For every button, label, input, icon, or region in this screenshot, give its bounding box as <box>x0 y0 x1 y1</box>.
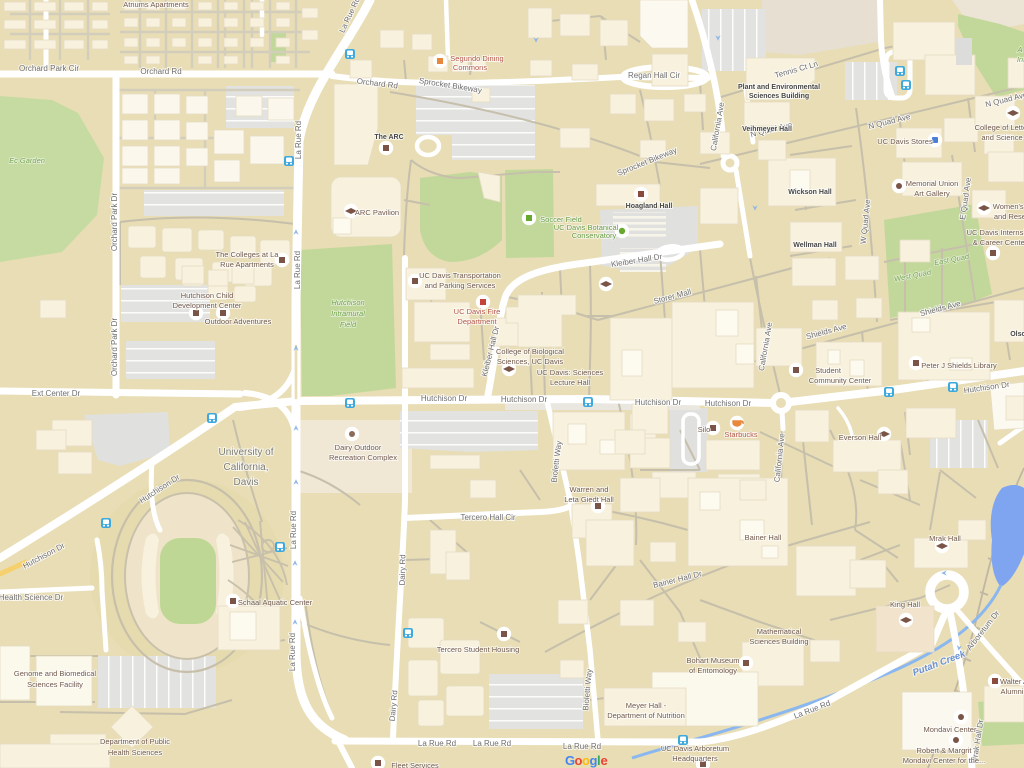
svg-text:Hutchison: Hutchison <box>331 298 364 307</box>
svg-text:Mrak Hall: Mrak Hall <box>929 534 961 543</box>
svg-text:Orchard Park Dr: Orchard Park Dr <box>110 318 119 377</box>
svg-text:Meyer Hall -: Meyer Hall - <box>626 701 667 710</box>
svg-text:Dairy Outdoor: Dairy Outdoor <box>335 443 382 452</box>
svg-text:Starbucks: Starbucks <box>724 430 758 439</box>
svg-text:Orchard Park Cir: Orchard Park Cir <box>19 64 79 73</box>
svg-text:Veihmeyer Hall: Veihmeyer Hall <box>742 126 792 133</box>
svg-text:La Rue Rd: La Rue Rd <box>473 739 511 748</box>
svg-text:Recreation Complex: Recreation Complex <box>329 453 397 462</box>
svg-text:Hoagland Hall: Hoagland Hall <box>626 203 673 210</box>
svg-text:Hutchison Dr: Hutchison Dr <box>421 394 468 403</box>
svg-text:Lecture Hall: Lecture Hall <box>550 378 590 387</box>
svg-text:Leta Giedt Hall: Leta Giedt Hall <box>564 495 614 504</box>
svg-text:Rue Apartments: Rue Apartments <box>220 260 274 269</box>
svg-text:Outdoor Adventures: Outdoor Adventures <box>205 317 272 326</box>
svg-text:Health Science Dr: Health Science Dr <box>0 593 64 602</box>
svg-text:of Entomology: of Entomology <box>689 666 737 675</box>
svg-text:Development Center: Development Center <box>173 301 242 310</box>
svg-text:UC Davis Transportation: UC Davis Transportation <box>419 271 501 280</box>
svg-text:College of Biological: College of Biological <box>496 347 564 356</box>
svg-text:Department: Department <box>457 317 497 326</box>
svg-text:and Science: and Science <box>981 133 1022 142</box>
svg-text:Plant and Environmental: Plant and Environmental <box>738 84 820 91</box>
svg-text:and Parking Services: and Parking Services <box>425 281 496 290</box>
svg-text:Art Gallery: Art Gallery <box>914 189 950 198</box>
svg-text:Hutchison Dr: Hutchison Dr <box>635 398 682 407</box>
svg-text:UC Davis Fire: UC Davis Fire <box>454 307 501 316</box>
svg-text:Everson Hall: Everson Hall <box>839 433 882 442</box>
svg-text:Tercero Student Housing: Tercero Student Housing <box>437 645 520 654</box>
svg-text:Hutchison Dr: Hutchison Dr <box>501 395 548 404</box>
svg-text:Silo: Silo <box>698 425 711 434</box>
svg-text:Peter J Shields Library: Peter J Shields Library <box>921 361 997 370</box>
svg-text:Atriums Apartments: Atriums Apartments <box>123 0 189 9</box>
svg-text:La Rue Rd: La Rue Rd <box>563 742 601 751</box>
svg-text:Olso: Olso <box>1010 331 1024 338</box>
svg-text:Headquarters: Headquarters <box>672 754 718 763</box>
svg-text:UC Davis: Sciences: UC Davis: Sciences <box>537 368 604 377</box>
svg-text:& Career Center: & Career Center <box>973 238 1024 247</box>
svg-text:Segundo Dining: Segundo Dining <box>450 54 503 63</box>
svg-text:Department of Nutrition: Department of Nutrition <box>607 711 685 720</box>
svg-text:UC Davis Internship: UC Davis Internship <box>967 228 1024 237</box>
svg-text:ARC Pavilion: ARC Pavilion <box>355 208 399 217</box>
svg-text:Fleet Services: Fleet Services <box>391 761 439 768</box>
svg-text:Memorial Union: Memorial Union <box>906 179 959 188</box>
svg-text:Wickson Hall: Wickson Hall <box>788 189 832 196</box>
svg-text:The ARC: The ARC <box>374 134 403 141</box>
svg-text:Conservatory: Conservatory <box>572 231 617 240</box>
svg-text:Sciences Building: Sciences Building <box>749 637 808 646</box>
svg-text:and Resea: and Resea <box>994 212 1024 221</box>
svg-text:Regan Hall Cir: Regan Hall Cir <box>628 71 680 80</box>
svg-text:University of: University of <box>218 447 273 458</box>
svg-text:La Rue Rd: La Rue Rd <box>289 511 298 549</box>
svg-text:Sciences Facility: Sciences Facility <box>27 680 83 689</box>
svg-text:Field: Field <box>340 320 357 329</box>
svg-text:Dairy Rd: Dairy Rd <box>398 554 408 585</box>
svg-text:The Colleges at La: The Colleges at La <box>216 250 280 259</box>
svg-text:Alumni: Alumni <box>1001 687 1024 696</box>
svg-text:e: e <box>601 753 608 768</box>
svg-text:Women's R: Women's R <box>993 202 1024 211</box>
svg-text:Hutchison Child: Hutchison Child <box>181 291 234 300</box>
svg-text:Tercero Hall Cir: Tercero Hall Cir <box>460 513 515 522</box>
svg-text:Walter A: Walter A <box>1000 677 1024 686</box>
svg-text:Ext Center Dr: Ext Center Dr <box>32 389 81 398</box>
svg-text:La Rue Rd: La Rue Rd <box>293 251 302 289</box>
svg-text:Department of Public: Department of Public <box>100 737 170 746</box>
svg-text:La Rue Rd: La Rue Rd <box>288 633 297 671</box>
svg-text:Sciences Building: Sciences Building <box>749 93 809 100</box>
svg-text:King Hall: King Hall <box>890 600 920 609</box>
svg-text:Sciences, UC Davis: Sciences, UC Davis <box>497 357 564 366</box>
svg-text:UC Davis Arboretum: UC Davis Arboretum <box>661 744 729 753</box>
svg-text:Mondavi Center: Mondavi Center <box>924 725 977 734</box>
svg-text:Mondavi Center for the...: Mondavi Center for the... <box>903 756 986 765</box>
svg-text:Community Center: Community Center <box>809 376 872 385</box>
svg-text:UC Davis Stores: UC Davis Stores <box>877 137 933 146</box>
svg-text:Student: Student <box>815 366 842 375</box>
svg-text:La Rue Rd: La Rue Rd <box>418 739 456 748</box>
svg-text:Wellman Hall: Wellman Hall <box>793 242 836 249</box>
svg-text:Int: Int <box>1017 55 1024 64</box>
svg-text:A: A <box>1016 45 1022 54</box>
svg-text:Genome and Biomedical: Genome and Biomedical <box>14 669 96 678</box>
svg-text:Ec Garden: Ec Garden <box>9 156 45 165</box>
svg-text:Schaal Aquatic Center: Schaal Aquatic Center <box>238 598 313 607</box>
svg-text:Hutchison Dr: Hutchison Dr <box>705 399 752 408</box>
svg-text:Robert & Margrit: Robert & Margrit <box>916 746 972 755</box>
svg-text:Orchard Park Dr: Orchard Park Dr <box>110 193 119 252</box>
svg-text:Bohart Museum: Bohart Museum <box>687 656 740 665</box>
svg-text:Davis: Davis <box>233 477 258 488</box>
svg-text:Orchard Rd: Orchard Rd <box>140 67 181 76</box>
svg-text:California,: California, <box>223 462 268 473</box>
svg-text:College of Letters: College of Letters <box>975 123 1024 132</box>
svg-text:Mathematical: Mathematical <box>757 627 802 636</box>
svg-text:Intramural: Intramural <box>331 309 365 318</box>
svg-text:Bainer Hall: Bainer Hall <box>745 533 782 542</box>
svg-text:La Rue Rd: La Rue Rd <box>294 121 303 159</box>
svg-text:Health Sciences: Health Sciences <box>108 748 162 757</box>
svg-text:Warren and: Warren and <box>570 485 609 494</box>
svg-text:Commons: Commons <box>453 63 487 72</box>
